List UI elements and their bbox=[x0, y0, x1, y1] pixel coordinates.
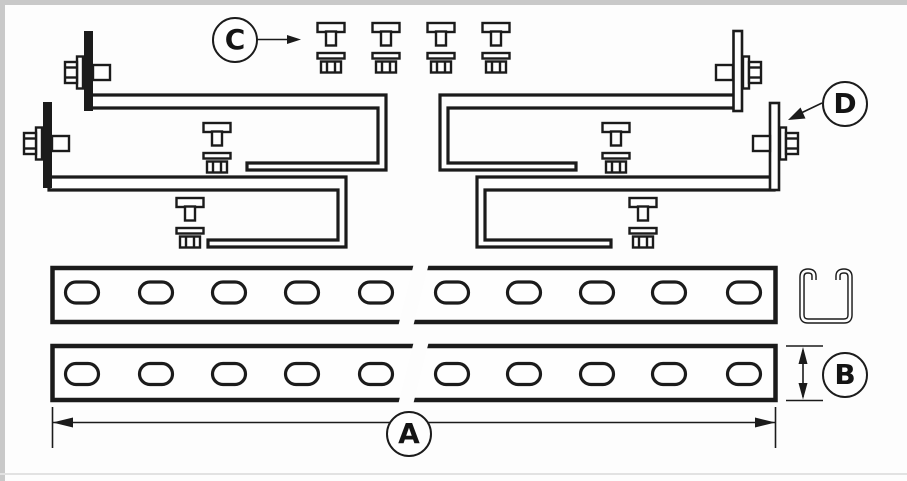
arrowhead-up-icon bbox=[799, 347, 808, 364]
callout-c-label: C bbox=[225, 26, 246, 54]
rail-upper bbox=[53, 263, 776, 327]
leader-c bbox=[257, 35, 301, 44]
bracket-body bbox=[440, 95, 738, 170]
arrowhead-right-icon bbox=[755, 418, 776, 428]
callout-c: C bbox=[212, 17, 258, 63]
bracket-body bbox=[477, 177, 774, 247]
page-border-left bbox=[0, 0, 5, 481]
dimension-b bbox=[786, 346, 823, 401]
bracket-flange bbox=[84, 31, 93, 111]
page-border-top bbox=[0, 0, 907, 5]
t-bolt-icon bbox=[483, 23, 510, 73]
callout-a: A bbox=[386, 411, 432, 457]
bracket-lower-left bbox=[43, 102, 346, 247]
t-bolt-icon bbox=[204, 123, 231, 173]
t-bolt-icon bbox=[630, 198, 657, 248]
t-bolt-icon bbox=[373, 23, 400, 73]
arrowhead-left-icon bbox=[53, 418, 74, 428]
leader-arrowhead-icon bbox=[287, 35, 301, 44]
t-bolt-icon bbox=[603, 123, 630, 173]
bracket-flange bbox=[734, 31, 743, 111]
arrowhead-down-icon bbox=[799, 383, 808, 400]
drawing-page: C D A B bbox=[0, 0, 907, 481]
parts-diagram bbox=[0, 0, 907, 481]
t-bolt-icon bbox=[177, 198, 204, 248]
leader-arrowhead-icon bbox=[788, 108, 806, 121]
t-bolt-row bbox=[318, 23, 510, 73]
bracket-flange bbox=[43, 102, 52, 188]
leader-d bbox=[788, 103, 822, 120]
bracket-body bbox=[88, 95, 386, 170]
callout-d-label: D bbox=[833, 90, 856, 118]
t-bolt-icon bbox=[428, 23, 455, 73]
bracket-flange bbox=[770, 103, 779, 190]
callout-d: D bbox=[822, 81, 868, 127]
callout-a-label: A bbox=[398, 420, 420, 448]
t-bolt-icon bbox=[318, 23, 345, 73]
rail-lower bbox=[53, 341, 776, 405]
channel-cross-section-icon bbox=[802, 271, 850, 321]
page-border-bottom bbox=[0, 473, 907, 475]
callout-b-label: B bbox=[834, 361, 855, 389]
callout-b: B bbox=[822, 352, 868, 398]
